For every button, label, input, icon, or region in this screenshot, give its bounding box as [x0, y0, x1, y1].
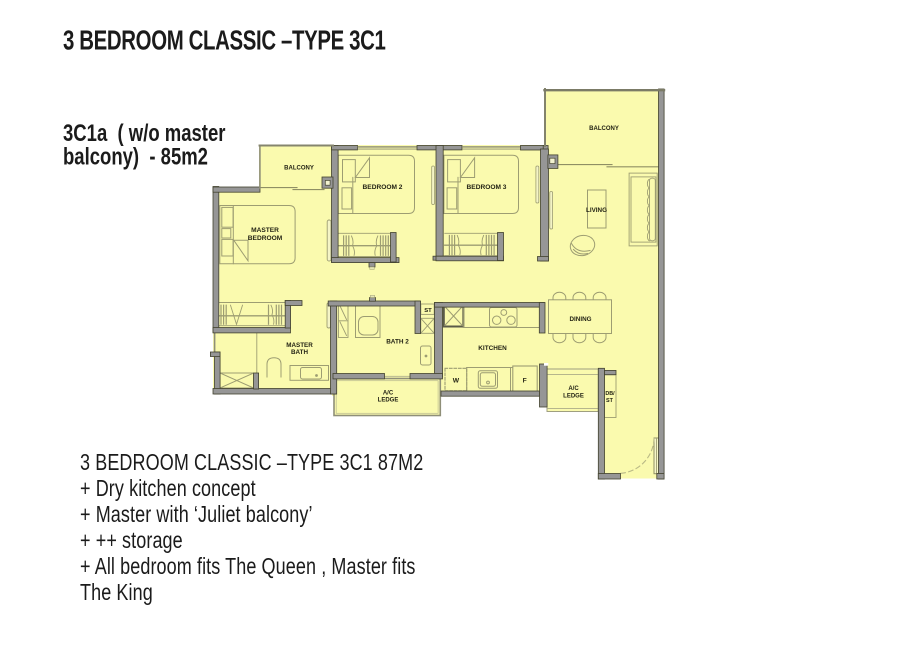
svg-text:LEDGE: LEDGE — [378, 398, 399, 404]
svg-text:BALCONY: BALCONY — [284, 165, 314, 171]
svg-text:MASTER: MASTER — [286, 342, 313, 349]
svg-text:ST: ST — [606, 398, 614, 404]
svg-text:A/C: A/C — [383, 390, 394, 396]
svg-text:ST: ST — [424, 308, 432, 314]
svg-text:KITCHEN: KITCHEN — [478, 345, 507, 352]
svg-text:W: W — [453, 377, 460, 384]
svg-text:BATH: BATH — [291, 349, 308, 356]
svg-text:BALCONY: BALCONY — [589, 126, 619, 132]
svg-text:BATH 2: BATH 2 — [386, 338, 409, 345]
svg-text:LIVING: LIVING — [586, 207, 607, 214]
svg-text:BEDROOM 2: BEDROOM 2 — [363, 184, 403, 191]
svg-text:A/C: A/C — [568, 386, 579, 392]
svg-text:BEDROOM: BEDROOM — [248, 235, 283, 242]
svg-text:LEDGE: LEDGE — [563, 393, 584, 399]
svg-text:F: F — [523, 377, 527, 384]
svg-text:DB/: DB/ — [605, 391, 615, 397]
svg-text:BEDROOM 3: BEDROOM 3 — [467, 184, 507, 191]
svg-text:DINING: DINING — [569, 316, 591, 323]
svg-text:MASTER: MASTER — [251, 227, 279, 234]
